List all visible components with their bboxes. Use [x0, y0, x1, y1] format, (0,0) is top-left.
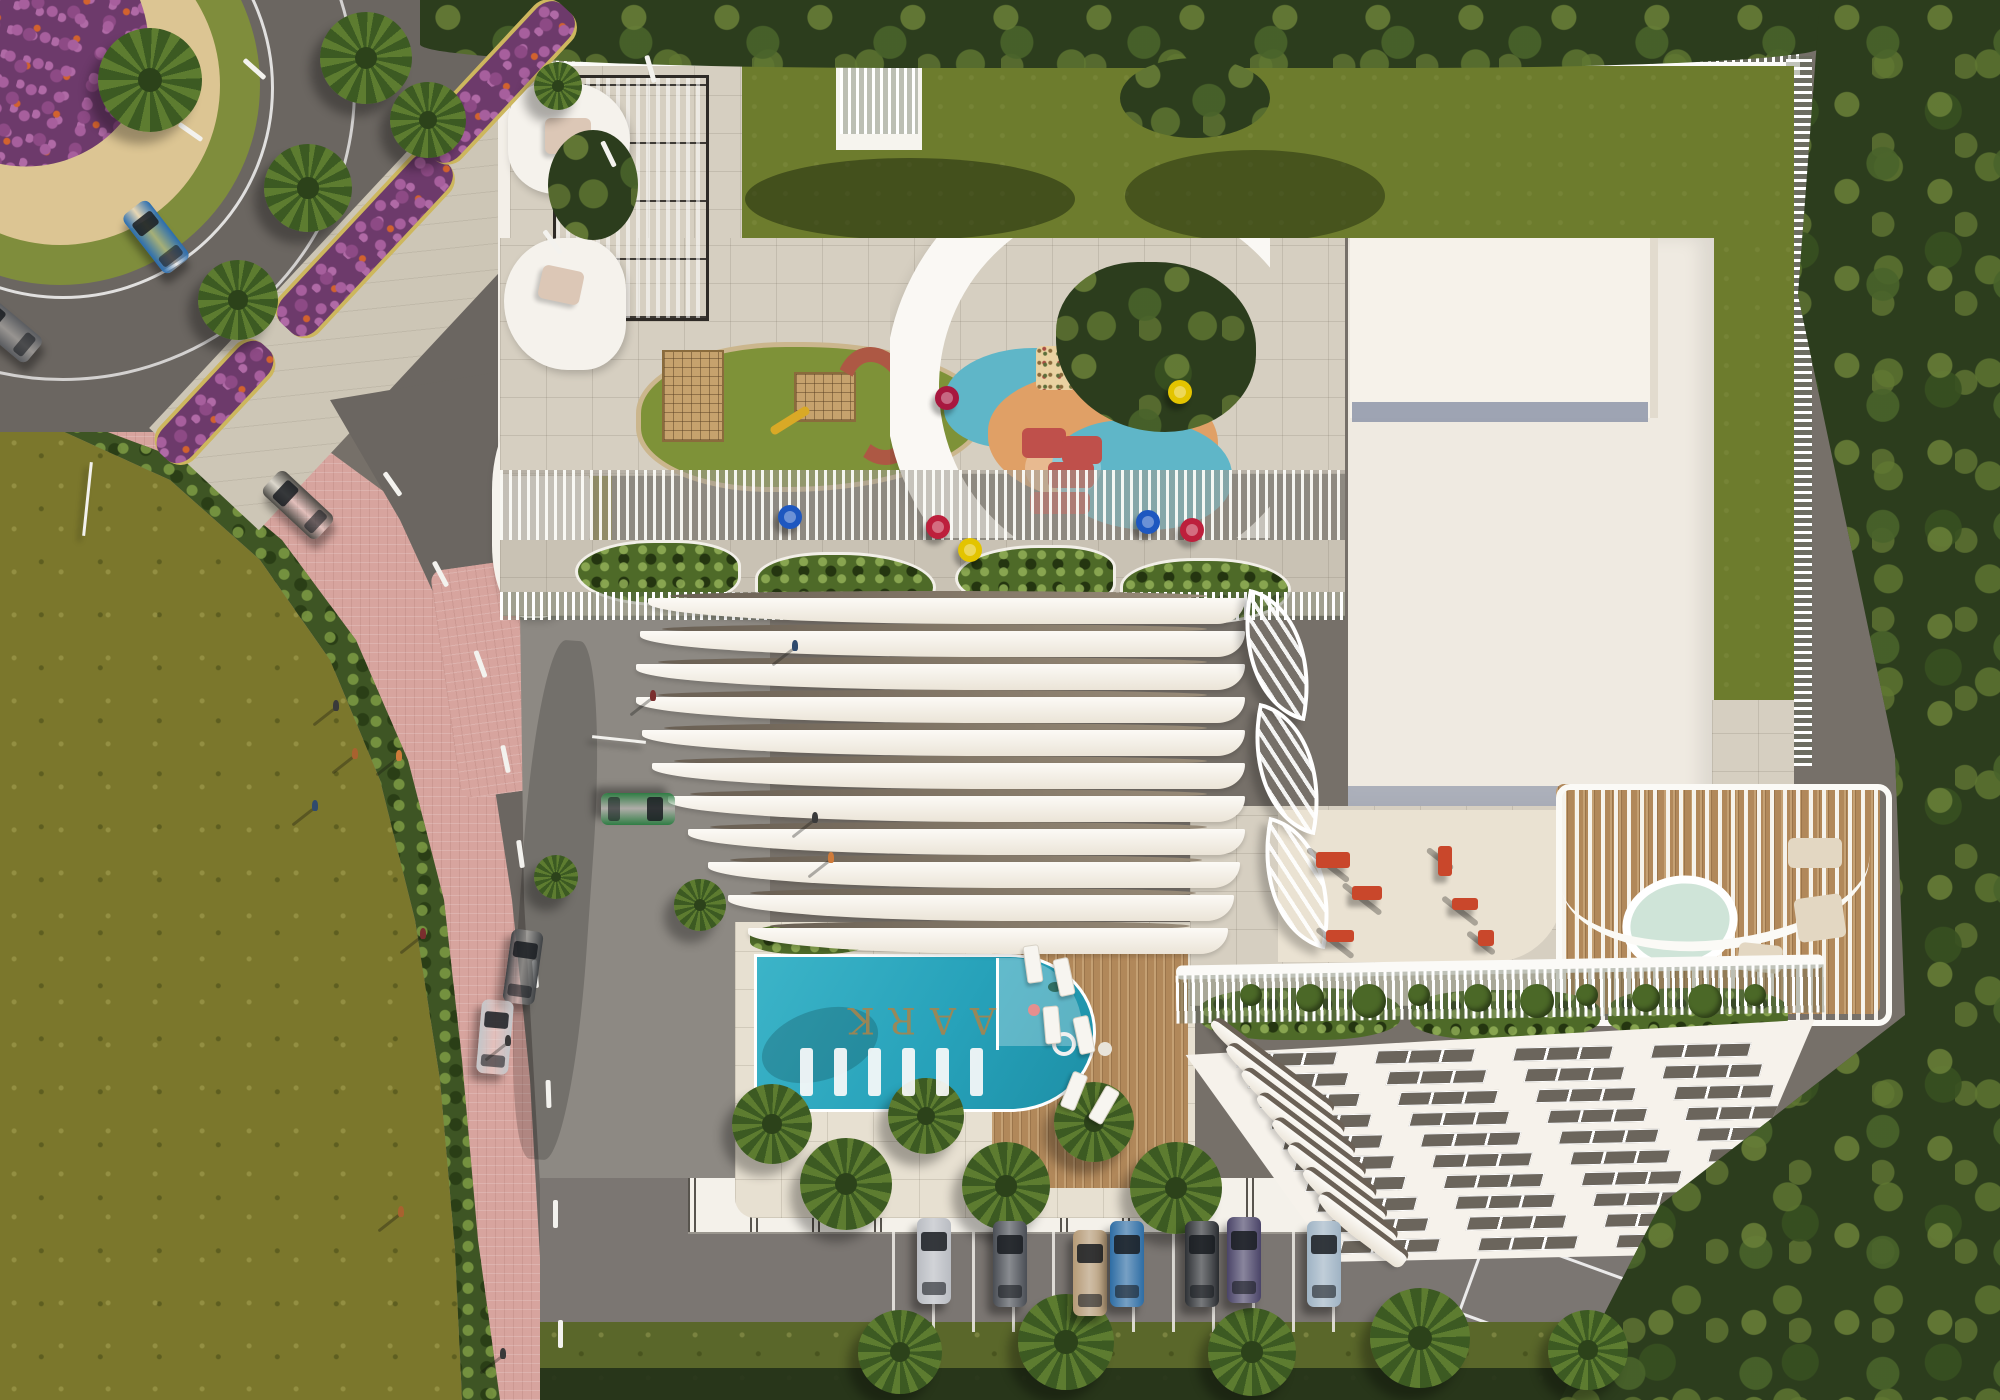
gym-equipment: [1452, 898, 1478, 910]
palm-tree: [534, 855, 578, 899]
person: [500, 1348, 506, 1359]
lane-dash: [242, 58, 266, 80]
parked-car: [1307, 1221, 1341, 1307]
parapet-plant: [1296, 984, 1324, 1012]
leaf-trellis: [1235, 703, 1340, 835]
car-windshield: [1114, 1235, 1140, 1254]
car-rear-window: [1115, 1285, 1140, 1299]
car-rear-window: [12, 332, 36, 357]
palm-tree: [1370, 1288, 1470, 1388]
palm-tree: [1548, 1310, 1628, 1390]
palm-tree: [888, 1078, 964, 1154]
parked-car: [1185, 1221, 1219, 1307]
parapet-plant: [1352, 984, 1386, 1018]
person: [333, 700, 339, 711]
light-pole: [592, 735, 646, 744]
egg-chair: [778, 505, 802, 529]
person: [396, 750, 402, 761]
egg-chair: [1136, 510, 1160, 534]
in-pool-lounger: [970, 1048, 983, 1096]
person: [398, 1206, 404, 1217]
in-pool-lounger: [936, 1048, 949, 1096]
car-rear-window: [922, 1282, 947, 1296]
palm-tree: [732, 1084, 812, 1164]
person: [420, 928, 426, 939]
lane-dash: [432, 560, 450, 587]
car-windshield: [512, 940, 538, 959]
car-rear-window: [998, 1285, 1023, 1299]
car-windshield: [1311, 1235, 1337, 1254]
parked-car: [1110, 1221, 1144, 1307]
balcony-row: [652, 763, 1245, 789]
person: [650, 690, 656, 701]
person-shadow: [332, 756, 354, 774]
balcony-row: [648, 598, 1245, 624]
car-windshield: [0, 303, 7, 332]
person: [352, 748, 358, 759]
in-pool-lounger: [834, 1048, 847, 1096]
lane-dash: [178, 122, 204, 142]
lane-dash: [644, 55, 657, 83]
lane-dash: [558, 1320, 563, 1348]
parapet-plant: [1240, 984, 1262, 1006]
person: [792, 640, 798, 651]
lane-dash: [473, 650, 487, 678]
palm-tree: [962, 1142, 1050, 1230]
palm-tree: [264, 144, 352, 232]
lane-dash: [382, 471, 402, 497]
car-rear-window: [608, 797, 620, 820]
person: [312, 800, 318, 811]
palm-tree: [390, 82, 466, 158]
person: [812, 812, 818, 823]
parapet-plant: [1688, 984, 1722, 1018]
car-windshield: [997, 1235, 1023, 1254]
lane-dash: [553, 1200, 558, 1228]
aerial-site-render: AARK: [0, 0, 2000, 1400]
balcony-row: [640, 631, 1245, 657]
road-car: [260, 468, 336, 542]
light-pole: [82, 462, 93, 536]
person: [505, 1035, 511, 1046]
car-rear-window: [158, 244, 183, 268]
gym-equipment: [1352, 886, 1382, 900]
palm-tree: [1208, 1308, 1296, 1396]
parapet-plant: [1632, 984, 1660, 1012]
egg-chair: [1180, 518, 1204, 542]
car-windshield: [1077, 1244, 1103, 1263]
parapet-plant: [1464, 984, 1492, 1012]
gym-equipment: [1316, 852, 1350, 868]
person-shadow: [376, 758, 398, 776]
lane-dash: [516, 840, 525, 868]
in-pool-lounger: [868, 1048, 881, 1096]
gym-equipment: [1438, 846, 1452, 876]
balcony-row: [668, 796, 1245, 822]
lane-dash: [546, 1080, 552, 1108]
road-car: [121, 198, 192, 276]
parapet-plant: [1744, 984, 1766, 1006]
car-rear-window: [1078, 1294, 1103, 1308]
egg-chair: [935, 386, 959, 410]
palm-tree: [98, 28, 202, 132]
balcony-row: [748, 928, 1228, 954]
balcony-row: [636, 664, 1245, 690]
deck-lounger: [1052, 957, 1076, 997]
road-car: [502, 928, 544, 1006]
egg-chair: [1168, 380, 1192, 404]
person-shadow: [292, 808, 314, 826]
palm-tree: [800, 1138, 892, 1230]
palm-tree: [858, 1310, 942, 1394]
person-shadow: [378, 1214, 400, 1232]
parapet-plant: [1520, 984, 1554, 1018]
deck-lounger: [1042, 1005, 1061, 1044]
parapet-plant: [1576, 984, 1598, 1006]
car-rear-window: [1312, 1285, 1337, 1299]
egg-chair: [958, 538, 982, 562]
stall-line: [1172, 1232, 1175, 1332]
gym-equipment: [1326, 930, 1354, 942]
person-shadow: [313, 708, 335, 726]
parked-car: [1227, 1217, 1261, 1303]
egg-chair: [926, 515, 950, 539]
palm-tree: [534, 62, 582, 110]
person: [828, 852, 834, 863]
deck-lounger: [1072, 1015, 1096, 1055]
balcony-row: [688, 829, 1245, 855]
lane-dash: [542, 229, 563, 255]
palm-tree: [198, 260, 278, 340]
gym-equipment: [1478, 930, 1494, 946]
car-rear-window: [507, 983, 531, 998]
car-windshield: [1231, 1231, 1257, 1250]
road-car: [601, 793, 675, 825]
palm-tree: [320, 12, 412, 104]
parked-car: [917, 1218, 951, 1304]
parked-car: [993, 1221, 1027, 1307]
car-rear-window: [303, 509, 327, 534]
in-pool-lounger: [902, 1048, 915, 1096]
balcony-row: [708, 862, 1240, 888]
generated-items: [0, 0, 2000, 1400]
car-windshield: [484, 1011, 510, 1029]
road-car: [0, 293, 45, 365]
car-windshield: [1189, 1235, 1215, 1254]
lane-dash: [500, 745, 511, 773]
person-shadow: [400, 936, 422, 954]
parked-car: [1073, 1230, 1107, 1316]
person-shadow: [480, 1356, 502, 1374]
car-windshield: [271, 479, 299, 508]
balcony-row: [636, 697, 1245, 723]
balcony-row: [642, 730, 1245, 756]
car-windshield: [647, 797, 663, 821]
flower-median: [146, 331, 283, 473]
stall-line: [972, 1232, 975, 1332]
car-windshield: [131, 210, 160, 238]
car-rear-window: [1232, 1281, 1257, 1295]
lane-dash: [600, 140, 617, 167]
palm-tree: [674, 879, 726, 931]
car-windshield: [921, 1232, 947, 1251]
parapet-plant: [1408, 984, 1430, 1006]
in-pool-lounger: [800, 1048, 813, 1096]
balcony-row: [728, 895, 1234, 921]
stall-line: [1292, 1232, 1295, 1332]
car-rear-window: [1190, 1285, 1215, 1299]
